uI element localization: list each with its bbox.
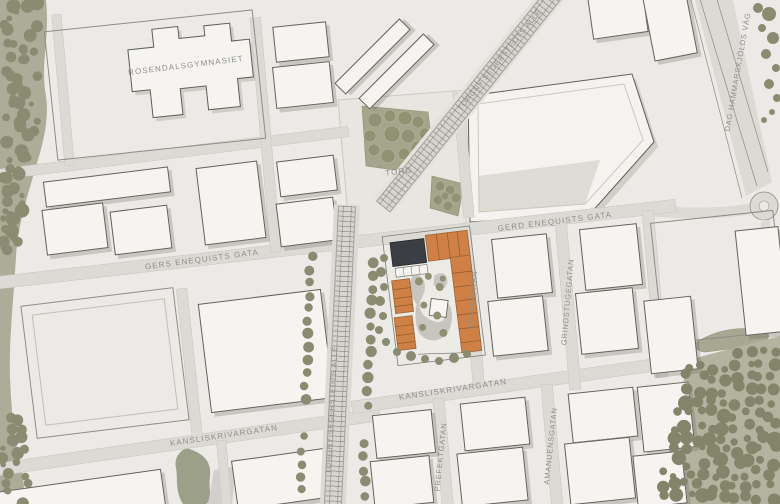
tree-dot (741, 454, 755, 468)
tree-dot (0, 462, 6, 468)
tree-dot (308, 252, 317, 261)
tree-dot (360, 476, 371, 487)
tree-dot (2, 479, 11, 488)
tree-dot (760, 347, 767, 354)
tree-dot (689, 491, 696, 498)
tree-dot (728, 413, 737, 422)
tree-dot (696, 361, 705, 370)
tree-dot (669, 488, 683, 502)
tree-dot (34, 118, 41, 125)
tree-dot (12, 167, 25, 180)
tree-dot (753, 372, 762, 381)
tree-dot (7, 157, 13, 163)
tree-dot (699, 444, 706, 451)
tree-dot (766, 480, 774, 488)
tree-dot (12, 447, 24, 459)
tree-dot (756, 384, 767, 395)
tree-dot (361, 492, 370, 501)
tree-dot (683, 463, 691, 471)
tree-dot (6, 16, 12, 22)
tree-dot (0, 136, 13, 149)
tree-dot (705, 404, 717, 416)
tree-dot (13, 459, 21, 467)
tree-dot (752, 480, 761, 489)
tree-dot (17, 497, 29, 504)
tree-dot (298, 485, 306, 493)
tree-dot (745, 396, 756, 407)
tree-dot (719, 374, 731, 386)
tree-dot (720, 399, 728, 407)
tree-dot (33, 71, 43, 81)
tree-dot (0, 215, 6, 221)
tree-dot (24, 479, 33, 488)
tree-dot (9, 40, 17, 48)
tree-dot (6, 52, 17, 63)
tree-dot (358, 451, 368, 461)
tree-dot (754, 444, 761, 451)
tree-dot (305, 292, 314, 301)
tree-dot (729, 360, 741, 372)
tree-dot (2, 186, 14, 198)
tree-dot (366, 335, 376, 345)
tree-dot (301, 394, 312, 405)
tree-dot (303, 355, 314, 366)
tree-dot (13, 237, 23, 247)
tree-dot (669, 477, 682, 490)
tree-dot (2, 114, 10, 122)
tree-dot (17, 150, 30, 163)
tree-dot (2, 245, 12, 255)
tree-dot (728, 424, 737, 433)
tree-dot (659, 491, 668, 500)
tree-dot (755, 396, 764, 405)
tree-dot (751, 495, 761, 504)
tree-dot (698, 406, 706, 414)
tree-dot (368, 257, 379, 268)
tree-dot (368, 271, 378, 281)
tree-dot (362, 372, 373, 383)
tree-dot (303, 342, 314, 353)
tree-dot (363, 360, 373, 370)
tree-dot (5, 70, 16, 81)
tree-dot (731, 474, 739, 482)
tree-dot (7, 424, 18, 435)
tree-dot (29, 101, 34, 106)
tree-dot (692, 396, 703, 407)
tree-dot (767, 400, 775, 408)
trees-top-right (753, 3, 780, 123)
tree-dot (721, 366, 728, 373)
tree-dot (751, 465, 761, 475)
tree-dot (303, 317, 312, 326)
tree-dot (728, 493, 739, 504)
tree-dot (681, 383, 692, 394)
tree-dot (360, 439, 369, 448)
tree-dot (715, 422, 729, 436)
tree-dot (669, 442, 679, 452)
tree-dot (748, 361, 755, 368)
tree-dot (681, 369, 691, 379)
tree-dot (298, 461, 307, 470)
tree-dot (680, 431, 694, 445)
tree-dot (303, 368, 312, 377)
tree-dot (716, 435, 725, 444)
tree-dot (729, 399, 741, 411)
tree-dot (699, 458, 711, 470)
tree-dot (673, 407, 682, 416)
tree-dot (744, 435, 751, 442)
tree-dot (2, 196, 13, 207)
tree-dot (740, 473, 748, 481)
tree-dot (717, 389, 726, 398)
tree-dot (768, 494, 780, 504)
tree-dot (708, 376, 716, 384)
tree-dot (747, 346, 758, 357)
tree-dot (21, 128, 34, 141)
tree-dot (300, 382, 309, 391)
tree-dot (2, 24, 14, 36)
tree-dot (366, 295, 377, 306)
tree-dot (0, 446, 5, 451)
tree-dot (3, 468, 14, 479)
tree-dot (366, 323, 374, 331)
tree-dot (300, 432, 308, 440)
tree-dot (704, 488, 717, 501)
tree-dot (20, 46, 28, 54)
tree-dot (2, 208, 8, 214)
tree-dot (366, 346, 377, 357)
tree-dot (730, 438, 737, 445)
tree-dot (31, 32, 37, 38)
tree-dot (740, 491, 751, 502)
tree-dot (756, 456, 764, 464)
tree-dot (362, 386, 372, 396)
tree-dot (1, 172, 13, 184)
tree-dot (302, 328, 313, 339)
tree-dot (296, 472, 305, 481)
tree-dot (6, 413, 16, 423)
tree-dot (697, 468, 709, 480)
tree-dot (364, 402, 372, 410)
tree-dot (723, 444, 731, 452)
tree-dot (728, 482, 736, 490)
tree-dot (742, 408, 750, 416)
tree-dot (692, 478, 703, 489)
tree-dot (14, 9, 20, 15)
tree-dot (716, 465, 730, 479)
tree-dot (365, 308, 376, 319)
tree-dot (304, 303, 312, 311)
tree-dot (7, 434, 19, 446)
tree-dot (305, 278, 314, 287)
site-plan-map: ROSENDALSGYMNASIET TORG GERS ENEQUISTS G… (0, 0, 780, 504)
tree-dot (19, 193, 24, 198)
tree-dot (714, 452, 728, 466)
tree-dot (766, 372, 775, 381)
tree-dot (685, 407, 693, 415)
tree-dot (18, 56, 26, 64)
tree-dot (733, 380, 745, 392)
tree-dot (368, 285, 377, 294)
tree-and-project-layer (0, 0, 780, 504)
tree-dot (659, 467, 667, 475)
tree-dot (763, 469, 775, 481)
tree-dot (359, 467, 368, 476)
tree-dot (732, 348, 743, 359)
tree-dot (771, 348, 780, 357)
tree-dot (680, 478, 688, 486)
tree-dot (769, 358, 780, 371)
tree-dot (8, 98, 17, 107)
tree-dot (698, 422, 706, 430)
tree-dot (706, 395, 716, 405)
tree-dot (30, 48, 38, 56)
tree-dot (297, 448, 305, 456)
tree-dot (768, 383, 780, 395)
tree-dot (754, 359, 763, 368)
project-building-dark (390, 239, 427, 267)
tree-dot (6, 212, 20, 226)
tree-dot (687, 470, 696, 479)
tree-dot (672, 451, 686, 465)
tree-dot (744, 419, 755, 430)
tree-dot (4, 487, 11, 494)
tree-dot (304, 266, 314, 276)
